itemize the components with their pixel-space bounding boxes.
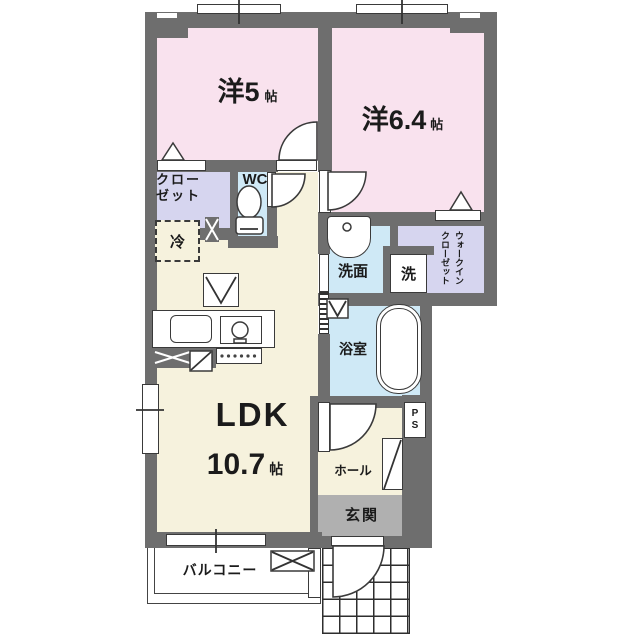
- brace-x-kitchen-icon: [155, 352, 190, 363]
- hall-label: ホール: [326, 460, 380, 476]
- faucet-icon: [343, 223, 351, 231]
- room5-unit: 帖: [265, 86, 278, 105]
- stove-knob: [234, 339, 246, 343]
- room5-name: 洋5: [217, 70, 259, 109]
- burner-icon: [232, 322, 248, 338]
- door-swing-room5-icon: [279, 122, 317, 160]
- door-swing-entrance-icon: [333, 546, 384, 597]
- door-swing-room64-icon: [328, 172, 366, 210]
- washroom-label: 洗面: [326, 260, 380, 280]
- counter-dots: [220, 354, 256, 357]
- ldk-size-label: 10.7 帖: [170, 448, 320, 486]
- toilet-bowl-icon: [237, 186, 261, 218]
- ldk-size: 10.7: [207, 448, 265, 482]
- entrance-label: 玄関: [334, 504, 390, 524]
- closet-line2: ゼット: [156, 188, 201, 204]
- closet-label: クロー ゼット: [156, 172, 230, 220]
- room64-label: 洋6.4 帖: [335, 98, 470, 134]
- toilet-tank-icon: [236, 217, 263, 234]
- door-swing-hall-icon: [330, 404, 376, 450]
- floorplan: 冷 洗 PS: [0, 0, 640, 640]
- room5-label: 洋5 帖: [190, 70, 305, 106]
- bathroom-label: 浴室: [330, 339, 376, 357]
- room64-unit: 帖: [430, 114, 443, 133]
- balcony-label: バルコニー: [166, 560, 274, 580]
- closet-hanger-icon: [162, 143, 184, 160]
- brace-x-wall-icon: [206, 219, 218, 240]
- room64-name: 洋6.4: [362, 98, 427, 137]
- door-swing-wc-icon: [272, 174, 305, 207]
- cupboard-v-icon: [206, 277, 236, 303]
- closet-line1: クロー: [156, 172, 201, 188]
- walkin-hanger-icon: [450, 192, 472, 210]
- ldk-label: LDK: [195, 396, 310, 436]
- ldk-unit: 帖: [269, 459, 283, 479]
- walkin-label-line1: ウォークイン: [453, 221, 466, 295]
- walkin-label-line2: クローゼット: [439, 221, 452, 295]
- shoe-cabinet-diag: [384, 440, 401, 489]
- wc-label: WC: [234, 171, 276, 189]
- symbols-layer: [0, 0, 640, 640]
